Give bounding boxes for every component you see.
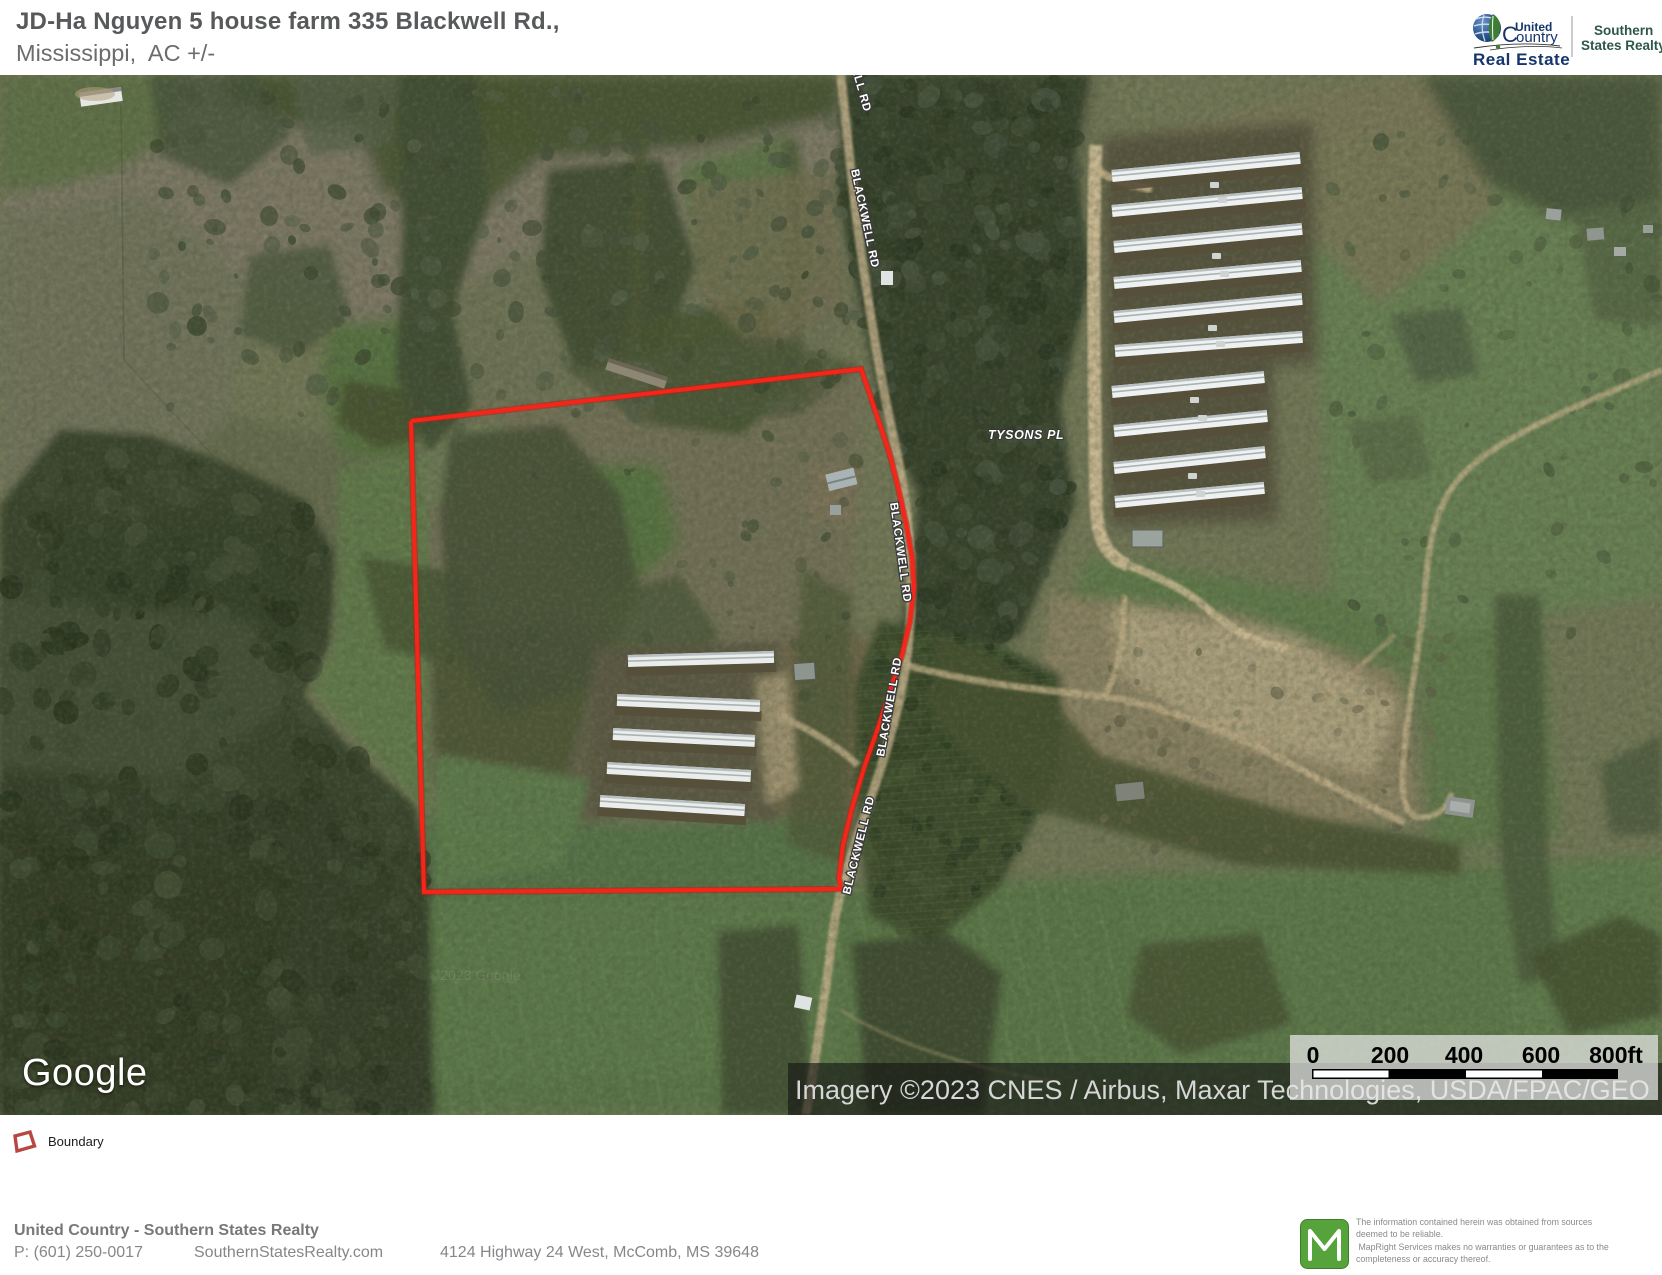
- svg-text:Real Estate: Real Estate: [1473, 50, 1570, 68]
- svg-text:600: 600: [1522, 1042, 1560, 1068]
- svg-text:Southern: Southern: [1594, 23, 1653, 38]
- svg-text:TYSONS PL: TYSONS PL: [988, 428, 1064, 442]
- svg-text:0: 0: [1307, 1042, 1320, 1068]
- svg-text:States Realty: States Realty: [1581, 38, 1662, 53]
- svg-text:200: 200: [1371, 1042, 1409, 1068]
- svg-text:800ft: 800ft: [1589, 1042, 1643, 1068]
- svg-text:ountry: ountry: [1516, 29, 1558, 46]
- svg-text:Google: Google: [22, 1052, 148, 1094]
- svg-text:400: 400: [1445, 1042, 1483, 1068]
